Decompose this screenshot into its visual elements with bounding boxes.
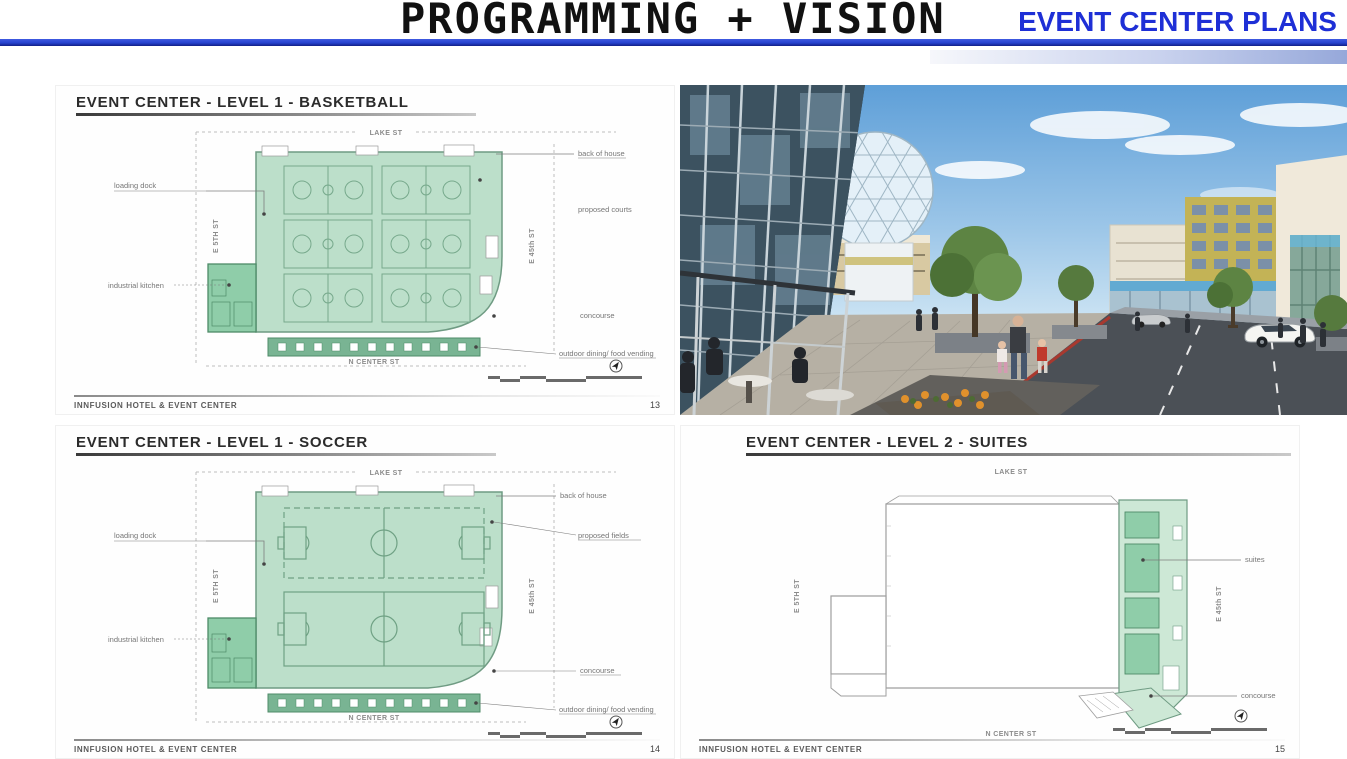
north-arrow-icon [1235,710,1247,722]
panel-suites-plan: EVENT CENTER - LEVEL 2 - SUITES LAKE ST [680,425,1300,759]
suites-heading-text: EVENT CENTER - LEVEL 2 - SUITES [746,434,1291,451]
basketball-heading-text: EVENT CENTER - LEVEL 1 - BASKETBALL [76,94,476,111]
event-hall [256,492,502,688]
header-rule [0,39,1347,46]
street-label-center: N CENTER ST [348,359,399,366]
street-rendering [680,85,1347,415]
svg-text:proposed courts: proposed courts [578,205,632,214]
suites-footer: INNFUSION HOTEL & EVENT CENTER 15 [699,739,1285,754]
page-title: PROGRAMMING + VISION [400,0,946,43]
street-label-center: N CENTER ST [348,715,399,722]
project-name: INNFUSION HOTEL & EVENT CENTER [74,745,237,754]
annotation-outdoor-dining: outdoor dining/ food vending [474,701,656,714]
svg-text:concourse: concourse [1241,691,1276,700]
suites-floorplan: LAKE ST [681,456,1301,742]
svg-text:industrial kitchen: industrial kitchen [108,281,164,290]
industrial-kitchen-block [208,618,256,688]
scale-bar [488,376,642,382]
project-name: INNFUSION HOTEL & EVENT CENTER [74,401,237,410]
svg-text:concourse: concourse [580,311,615,320]
svg-text:industrial kitchen: industrial kitchen [108,635,164,644]
header-subtitle-band [930,50,1347,64]
annotation-loading-dock: loading dock [114,181,266,216]
basketball-footer: INNFUSION HOTEL & EVENT CENTER 13 [74,395,660,410]
soccer-heading: EVENT CENTER - LEVEL 1 - SOCCER [76,434,496,456]
suites-heading: EVENT CENTER - LEVEL 2 - SUITES [746,434,1291,456]
scale-bar [1113,728,1267,734]
page-number: 14 [650,744,660,754]
svg-text:concourse: concourse [580,666,615,675]
street-label-5th: E 5TH ST [213,569,220,603]
panel-rendering [680,85,1347,415]
footer-line [74,395,660,397]
annotation-concourse: concourse [492,311,614,320]
blue-band [1110,281,1300,291]
svg-text:loading dock: loading dock [114,181,156,190]
annotation-back-of-house: back of house [496,149,626,158]
basketball-floorplan: LAKE ST [56,116,676,386]
industrial-kitchen-block [208,264,256,332]
slide: PROGRAMMING + VISION EVENT CENTER PLANS … [0,0,1347,759]
soccer-footer: INNFUSION HOTEL & EVENT CENTER 14 [74,739,660,754]
arena-outline [831,496,1119,696]
annotation-back-of-house: back of house [496,491,607,500]
annotation-proposed-fields: proposed fields [490,520,641,540]
north-arrow-icon [610,360,622,372]
svg-text:outdoor dining/ food vending: outdoor dining/ food vending [559,705,654,714]
footer-line [74,739,660,741]
street-label-5th: E 5TH ST [794,579,801,613]
basketball-heading: EVENT CENTER - LEVEL 1 - BASKETBALL [76,94,476,116]
panel-soccer-plan: EVENT CENTER - LEVEL 1 - SOCCER LAKE ST [55,425,675,759]
svg-text:outdoor dining/ food vending: outdoor dining/ food vending [559,349,654,358]
svg-text:proposed fields: proposed fields [578,531,629,540]
north-arrow-icon [610,716,622,728]
street-label-5th: E 5TH ST [213,219,220,253]
annotation-outdoor-dining: outdoor dining/ food vending [474,345,656,358]
soccer-heading-text: EVENT CENTER - LEVEL 1 - SOCCER [76,434,496,451]
scale-bar [488,732,642,738]
project-name: INNFUSION HOTEL & EVENT CENTER [699,745,862,754]
soccer-floorplan: LAKE ST [56,456,676,742]
street-label-45th: E 45th ST [529,228,536,264]
street-label-lake: LAKE ST [370,130,403,137]
suites-strip [1119,500,1187,708]
page-number: 13 [650,400,660,410]
street-label-45th: E 45th ST [529,578,536,614]
annotation-loading-dock: loading dock [114,531,266,566]
street-label-lake: LAKE ST [370,470,403,477]
svg-text:suites: suites [1245,555,1265,564]
page-subtitle: EVENT CENTER PLANS [1018,6,1337,38]
svg-text:back of house: back of house [578,149,625,158]
street-label-45th: E 45th ST [1216,586,1223,622]
annotation-concourse: concourse [492,666,621,675]
street-label-lake: LAKE ST [995,469,1028,476]
panel-basketball-plan: EVENT CENTER - LEVEL 1 - BASKETBALL LAKE… [55,85,675,415]
street-label-center: N CENTER ST [985,731,1036,738]
page-number: 15 [1275,744,1285,754]
svg-text:back of house: back of house [560,491,607,500]
svg-text:loading dock: loading dock [114,531,156,540]
footer-line [699,739,1285,741]
